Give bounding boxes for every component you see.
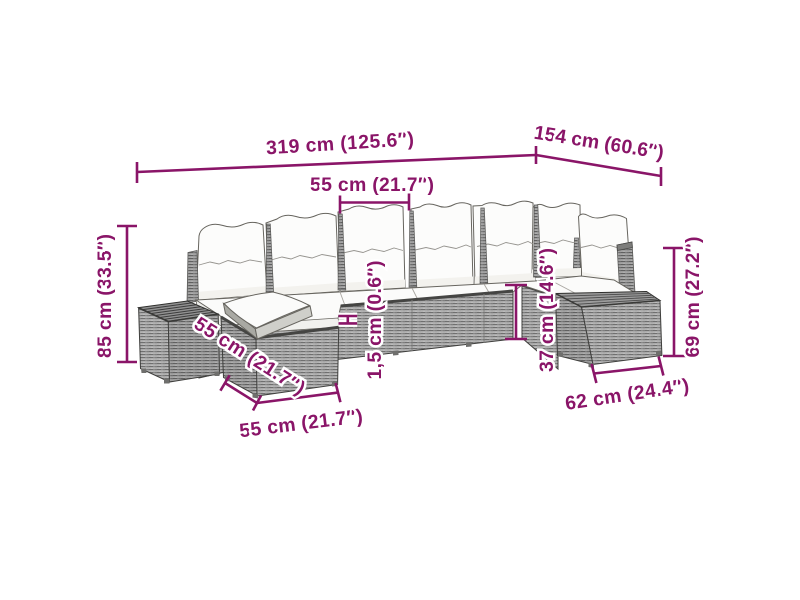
svg-text:1,5 cm (0.6″): 1,5 cm (0.6″) [364, 261, 386, 380]
svg-text:69 cm (27.2″): 69 cm (27.2″) [682, 237, 704, 358]
svg-text:85 cm (33.5″): 85 cm (33.5″) [94, 234, 116, 358]
svg-text:55 cm (21.7″): 55 cm (21.7″) [310, 174, 434, 196]
svg-text:37 cm (14.6″): 37 cm (14.6″) [536, 248, 558, 372]
